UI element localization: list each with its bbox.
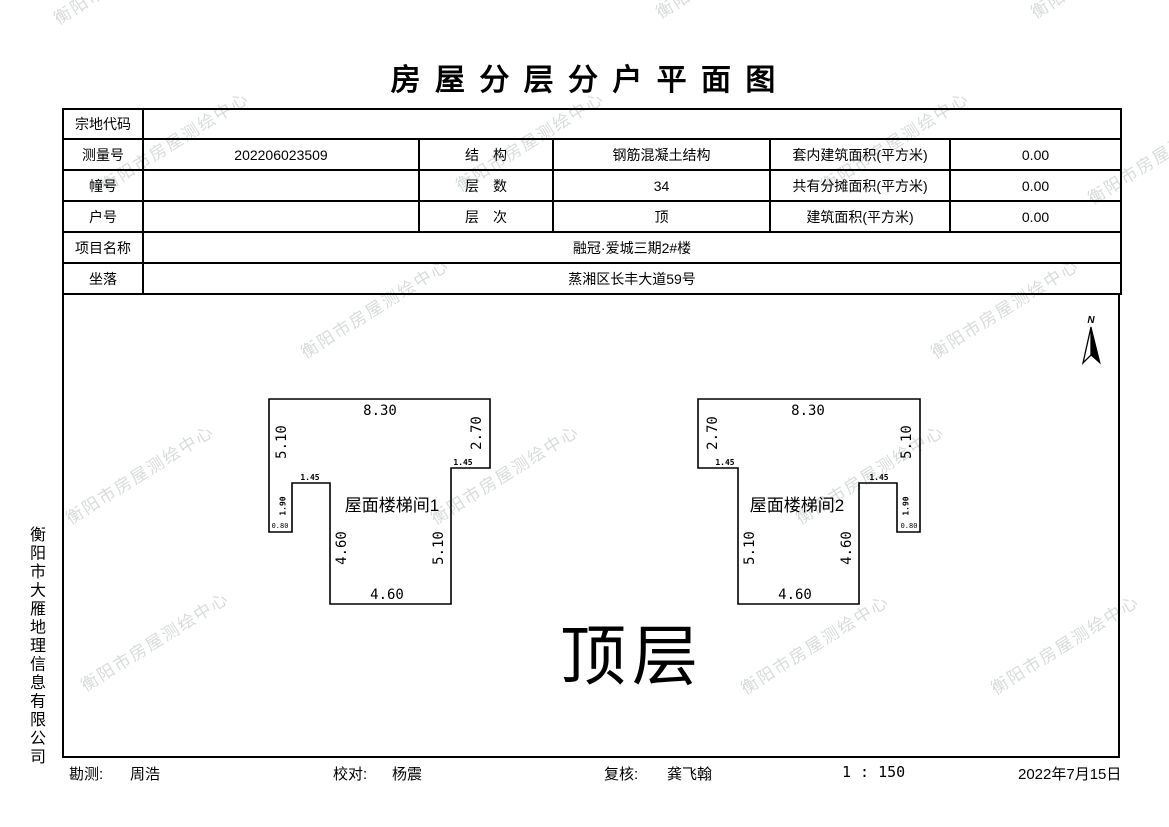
dim-inner-left: 5.10 <box>742 531 758 565</box>
plan1-room-label: 屋面楼梯间1 <box>345 496 439 515</box>
table-row: 户号 层 次 顶 建筑面积(平方米) 0.00 <box>63 201 1121 232</box>
drawing-area: 8.30 2.70 1.45 5.10 1.45 1.90 0.80 屋面楼梯间… <box>62 293 1120 758</box>
dim-notch-width: 0.80 <box>272 522 289 530</box>
watermark-text: 衡阳市房屋测绘中心 <box>650 0 808 23</box>
dim-inner-left: 4.60 <box>334 531 350 565</box>
floor-count-label: 层 数 <box>419 170 553 201</box>
property-info-table: 宗地代码 测量号 202206023509 结 构 钢筋混凝土结构 套内建筑面积… <box>62 108 1122 295</box>
dim-notch-height: 1.90 <box>902 496 911 515</box>
unit-no-value <box>143 201 419 232</box>
dim-inner-right: 4.60 <box>839 531 855 565</box>
dim-step-right: 1.45 <box>453 458 472 467</box>
floor-plan-sheet: 衡阳市房屋测绘中心衡阳市房屋测绘中心衡阳市房屋测绘中心衡阳市房屋测绘中心衡阳市房… <box>0 0 1169 827</box>
dim-left-upper: 2.70 <box>705 416 721 450</box>
dim-right: 5.10 <box>899 425 915 459</box>
building-no-value <box>143 170 419 201</box>
surveyor-label: 勘测: <box>69 763 103 784</box>
building-area-value: 0.00 <box>950 201 1121 232</box>
building-no-label: 幢号 <box>63 170 143 201</box>
dim-notch-width: 0.80 <box>901 522 918 530</box>
dim-bottom: 4.60 <box>370 587 404 603</box>
north-arrow: N <box>1076 315 1106 371</box>
building-area-label: 建筑面积(平方米) <box>770 201 950 232</box>
dim-top: 8.30 <box>791 403 825 419</box>
table-row: 幢号 层 数 34 共有分摊面积(平方米) 0.00 <box>63 170 1121 201</box>
reviewer-label: 复核: <box>604 763 638 784</box>
shared-area-value: 0.00 <box>950 170 1121 201</box>
project-name-label: 项目名称 <box>63 232 143 263</box>
floor-plan-2: 8.30 2.70 1.45 5.10 1.45 1.90 0.80 屋面楼梯间… <box>693 394 925 609</box>
surveyor-name: 周浩 <box>130 763 160 784</box>
dim-notch-height: 1.90 <box>279 496 288 515</box>
parcel-code-value <box>143 109 1121 139</box>
survey-no-value: 202206023509 <box>143 139 419 170</box>
table-row: 项目名称 融冠·爱城三期2#楼 <box>63 232 1121 263</box>
page-title: 房 屋 分 层 分 户 平 面 图 <box>0 55 1169 99</box>
checker-name: 杨震 <box>392 763 422 784</box>
floor-level-label: 层 次 <box>419 201 553 232</box>
watermark-text: 衡阳市房屋测绘中心 <box>48 0 206 29</box>
dim-inner-right: 5.10 <box>431 531 447 565</box>
dim-bottom: 4.60 <box>778 587 812 603</box>
structure-label: 结 构 <box>419 139 553 170</box>
location-value: 蒸湘区长丰大道59号 <box>143 263 1121 294</box>
watermark-text: 衡阳市房屋测绘中心 <box>1025 0 1169 23</box>
project-name-value: 融冠·爱城三期2#楼 <box>143 232 1121 263</box>
inner-area-value: 0.00 <box>950 139 1121 170</box>
footer-bar: 勘测: 周浩 校对: 杨震 复核: 龚飞翰 1 : 150 2022年7月15日 <box>0 763 1169 787</box>
company-name-vertical: 衡阳市大雁地理信息有限公司 <box>24 526 46 767</box>
north-letter: N <box>1076 315 1106 326</box>
floor-level-value: 顶 <box>553 201 770 232</box>
dim-step-left: 1.45 <box>715 458 734 467</box>
map-scale: 1 : 150 <box>842 763 905 781</box>
dim-top: 8.30 <box>363 403 397 419</box>
location-label: 坐落 <box>63 263 143 294</box>
survey-no-label: 测量号 <box>63 139 143 170</box>
unit-no-label: 户号 <box>63 201 143 232</box>
table-row: 测量号 202206023509 结 构 钢筋混凝土结构 套内建筑面积(平方米)… <box>63 139 1121 170</box>
dim-left: 5.10 <box>274 425 290 459</box>
parcel-code-label: 宗地代码 <box>63 109 143 139</box>
north-arrow-icon <box>1078 326 1104 366</box>
floor-plan-1: 8.30 2.70 1.45 5.10 1.45 1.90 0.80 屋面楼梯间… <box>264 394 496 609</box>
checker-label: 校对: <box>333 763 367 784</box>
structure-value: 钢筋混凝土结构 <box>553 139 770 170</box>
table-row: 坐落 蒸湘区长丰大道59号 <box>63 263 1121 294</box>
shared-area-label: 共有分摊面积(平方米) <box>770 170 950 201</box>
dim-right-upper: 2.70 <box>469 416 485 450</box>
dim-step-left: 1.45 <box>300 473 319 482</box>
table-row: 宗地代码 <box>63 109 1121 139</box>
reviewer-name: 龚飞翰 <box>667 763 712 784</box>
inner-area-label: 套内建筑面积(平方米) <box>770 139 950 170</box>
date: 2022年7月15日 <box>1018 763 1121 784</box>
floor-level-title: 顶层 <box>522 603 742 699</box>
dim-step-right: 1.45 <box>869 473 888 482</box>
floor-count-value: 34 <box>553 170 770 201</box>
plan2-room-label: 屋面楼梯间2 <box>750 496 844 515</box>
